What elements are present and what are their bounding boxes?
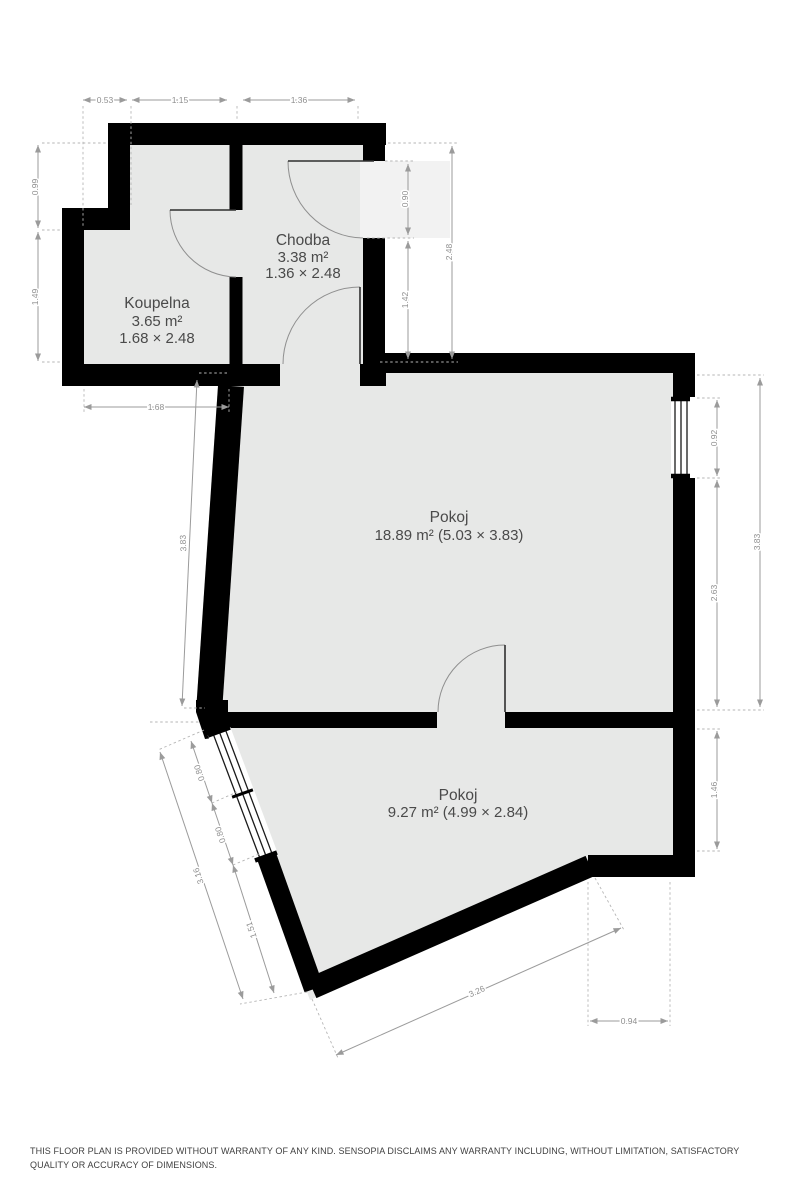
dim-label-top-1: 0.53 <box>97 95 114 105</box>
dim-label-chodba-lower: 1.42 <box>400 291 410 308</box>
dim-label-top-3: 1.36 <box>291 95 308 105</box>
room-label-chodba-name: Chodba <box>276 232 331 249</box>
dim-label-bottom-slant: 3.26 <box>467 983 486 999</box>
room-label-chodba-size: 1.36 × 2.48 <box>265 265 340 282</box>
disclaimer-text: THIS FLOOR PLAN IS PROVIDED WITHOUT WARR… <box>30 1144 750 1172</box>
dim-label-right-mid: 2.63 <box>709 584 719 601</box>
dim-label-left-upper: 0.99 <box>30 178 40 195</box>
floor-plan-svg: 0.53 1.15 1.36 0.99 1.49 1.68 3.83 0.90 … <box>0 0 800 1200</box>
dim-label-chodba-height: 2.48 <box>444 243 454 260</box>
room-label-pokoj-large-details: 18.89 m² (5.03 × 3.83) <box>375 527 524 544</box>
dim-label-bottom-right-width: 0.94 <box>621 1016 638 1026</box>
room-label-koupelna-size: 1.68 × 2.48 <box>119 330 194 347</box>
dim-label-window-seg-1: 0.80 <box>192 763 207 782</box>
dim-label-right-window: 0.92 <box>709 429 719 446</box>
room-label-pokoj-large-name: Pokoj <box>430 509 469 526</box>
room-label-pokoj-small-details: 9.27 m² (4.99 × 2.84) <box>388 804 529 821</box>
window-right <box>671 397 697 478</box>
floor-plan-page: 0.53 1.15 1.36 0.99 1.49 1.68 3.83 0.90 … <box>0 0 800 1200</box>
dim-label-koupelna-width: 1.68 <box>148 402 165 412</box>
dim-label-left-slant-wall: 1.51 <box>244 920 259 939</box>
room-label-koupelna-name: Koupelna <box>124 295 190 312</box>
room-label-pokoj-small-name: Pokoj <box>439 787 478 804</box>
dim-label-right-total: 3.83 <box>752 533 762 550</box>
room-label-chodba-area: 3.38 m² <box>278 249 329 266</box>
room-label-koupelna-area: 3.65 m² <box>132 313 183 330</box>
dim-label-pokoj-left-height: 3.83 <box>178 534 189 551</box>
dim-label-right-lower: 1.46 <box>709 781 719 798</box>
dim-label-entrance-width: 0.90 <box>400 190 410 207</box>
dim-label-window-seg-2: 0.80 <box>213 825 228 844</box>
dim-label-left-lower: 1.49 <box>30 288 40 305</box>
dim-label-left-slant-total: 3.16 <box>191 866 206 885</box>
dim-label-top-2: 1.15 <box>172 95 189 105</box>
